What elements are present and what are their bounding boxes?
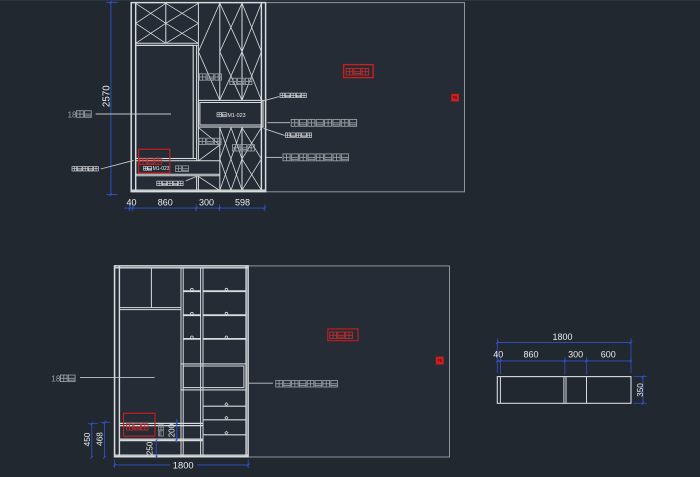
svg-text:200: 200 bbox=[167, 423, 176, 437]
svg-text:M1-023: M1-023 bbox=[153, 166, 170, 172]
svg-text:M1-023: M1-023 bbox=[227, 113, 245, 119]
svg-text:598: 598 bbox=[235, 198, 250, 208]
svg-text:350: 350 bbox=[636, 383, 645, 397]
svg-text:300: 300 bbox=[568, 350, 583, 360]
svg-text:600: 600 bbox=[601, 350, 616, 360]
svg-text:468: 468 bbox=[95, 432, 104, 446]
svg-text:40: 40 bbox=[126, 198, 136, 208]
svg-text:18: 18 bbox=[51, 375, 61, 384]
svg-text:300: 300 bbox=[199, 198, 214, 208]
svg-text:450: 450 bbox=[83, 432, 92, 446]
svg-text:18: 18 bbox=[68, 110, 78, 119]
svg-text:250: 250 bbox=[146, 441, 155, 455]
svg-text:40: 40 bbox=[493, 350, 503, 360]
svg-text:1800: 1800 bbox=[552, 332, 572, 342]
svg-text:1800: 1800 bbox=[173, 460, 194, 471]
svg-text:860: 860 bbox=[158, 198, 173, 208]
svg-text:2570: 2570 bbox=[102, 85, 113, 107]
svg-text:860: 860 bbox=[523, 350, 538, 360]
